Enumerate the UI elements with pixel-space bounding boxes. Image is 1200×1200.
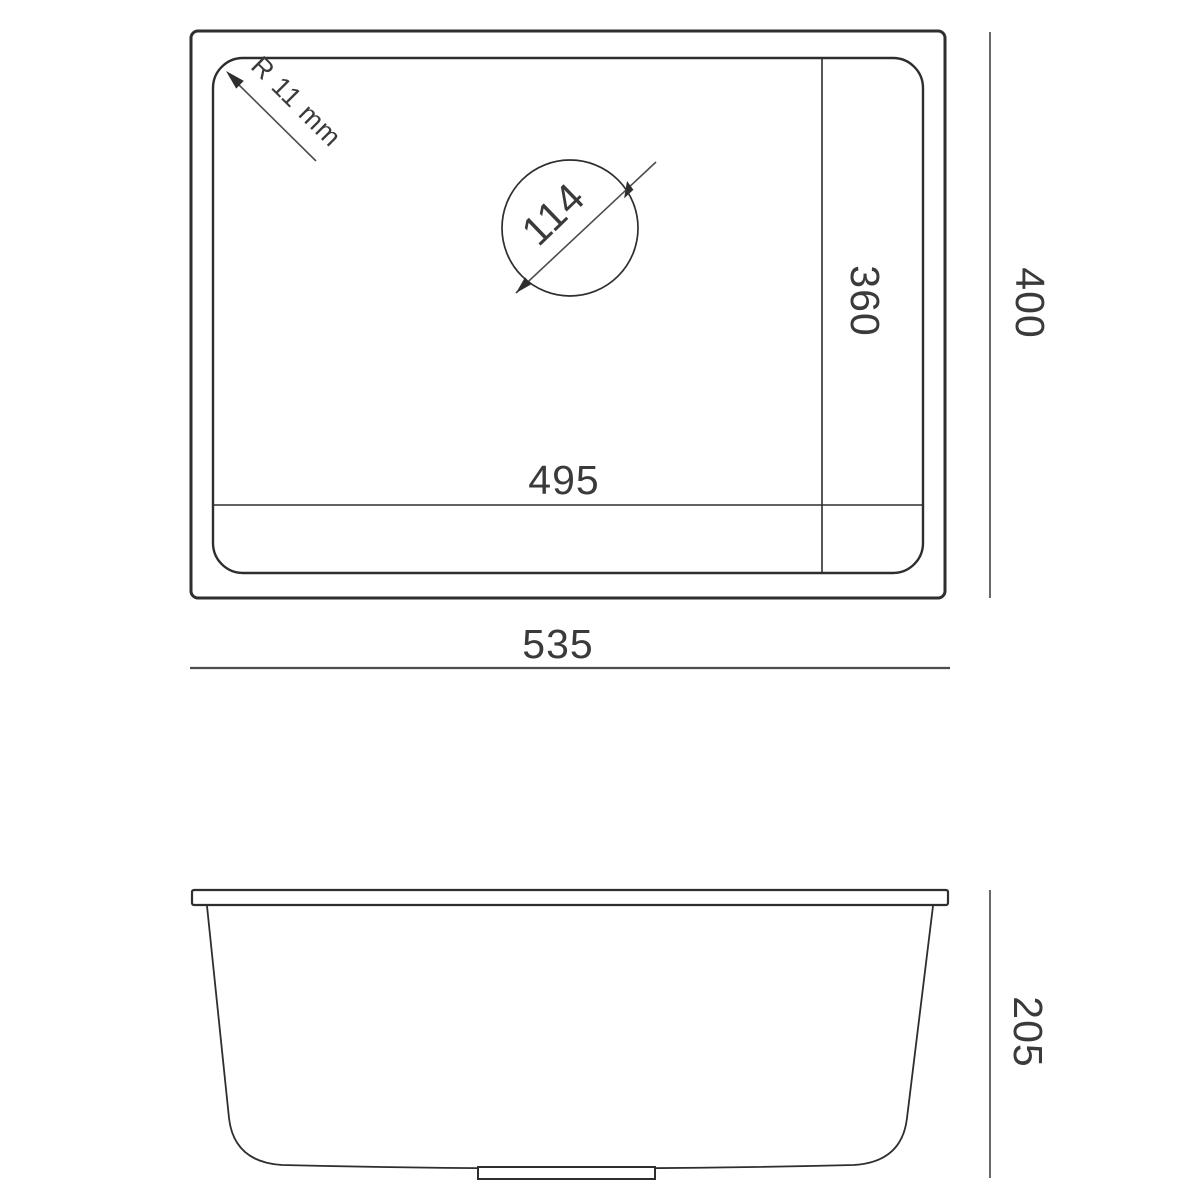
side-view: 205 [192, 890, 1051, 1179]
sink-technical-drawing-page: 114 R 11 mm 495 360 400 535 [0, 0, 1200, 1200]
bowl-width-label: 360 [842, 265, 888, 336]
drain-diameter-arrow-start [516, 277, 531, 293]
side-view-bowl-outline [207, 906, 933, 1169]
bowl-length-label: 495 [528, 457, 599, 503]
top-view: 114 R 11 mm 495 360 400 535 [190, 31, 1053, 668]
height-label: 205 [1005, 996, 1051, 1067]
sink-technical-drawing: 114 R 11 mm 495 360 400 535 [0, 0, 1200, 1200]
overall-width-label: 400 [1007, 267, 1053, 338]
drain-diameter-label: 114 [513, 174, 594, 255]
side-view-rim [192, 890, 948, 905]
corner-radius-label: R 11 mm [245, 51, 347, 153]
overall-length-label: 535 [522, 621, 593, 667]
side-view-drain-outlet [478, 1167, 655, 1179]
